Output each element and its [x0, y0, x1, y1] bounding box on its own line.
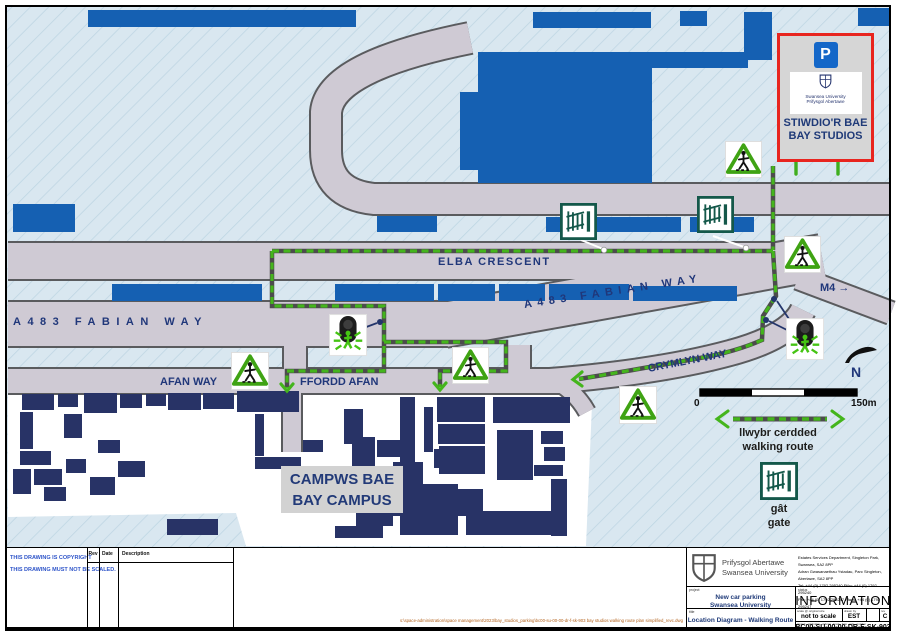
drawing-sheet: A483 FABIAN WAY A483 FABIAN WAY ELBA CRE…: [0, 0, 897, 636]
sheet-border: [5, 5, 891, 631]
